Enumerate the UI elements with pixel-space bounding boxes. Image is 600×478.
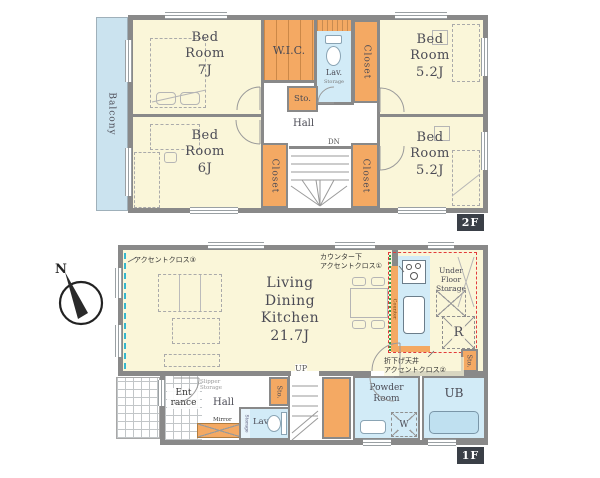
floor-plan-page: Balcony W.I.C. Lav. Storage Closet bbox=[0, 0, 600, 478]
lineart-overlay bbox=[0, 0, 600, 478]
compass-icon bbox=[60, 272, 102, 324]
